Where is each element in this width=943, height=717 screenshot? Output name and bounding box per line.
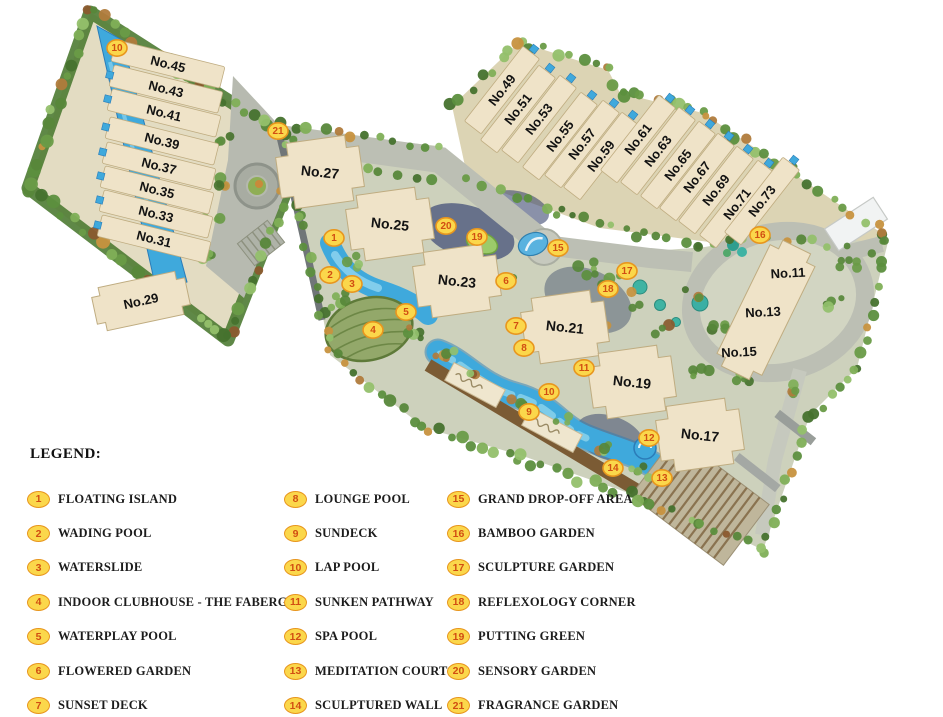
map-marker-1: 1 [324,230,344,246]
legend-item-label: MEDITATION COURT [315,664,448,679]
legend-badge: 13 [284,663,307,680]
legend-badge: 2 [27,525,50,542]
legend-badge: 3 [27,559,50,576]
marker-number: 21 [272,126,284,137]
building-no-29: No.29 [92,271,191,330]
map-marker-6: 6 [496,273,516,289]
legend-item-8: 8LOUNGE POOL [284,482,448,516]
legend-item-label: INDOOR CLUBHOUSE - THE FABERGÈ [58,595,296,610]
map-marker-4: 4 [363,322,383,338]
legend-badge: 17 [447,559,470,576]
legend-item-5: 5WATERPLAY POOL [27,620,296,654]
plunge-pool [96,172,104,180]
legend-item-16: 16BAMBOO GARDEN [447,516,636,550]
roundabout [235,164,279,208]
map-marker-19: 19 [467,229,487,245]
marker-number: 1 [331,233,337,244]
legend-badge: 18 [447,594,470,611]
plunge-pool [101,123,109,131]
legend-item-4: 4INDOOR CLUBHOUSE - THE FABERGÈ [27,585,296,619]
legend-item-label: LOUNGE POOL [315,492,410,507]
legend-item-13: 13MEDITATION COURT [284,654,448,688]
marker-number: 16 [754,230,766,241]
legend-badge: 10 [284,559,307,576]
marker-number: 19 [471,232,483,243]
legend-item-20: 20SENSORY GARDEN [447,654,636,688]
legend-item-label: GRAND DROP-OFF AREA [478,492,633,507]
road-spur [850,244,882,252]
legend-badge: 11 [284,594,307,611]
legend-item-label: SENSORY GARDEN [478,664,596,679]
marker-number: 8 [521,343,527,354]
building-label: No.13 [745,304,781,321]
plunge-pool [93,221,101,229]
legend-title: LEGEND: [30,446,101,463]
legend-item-label: SCULPTURE GARDEN [478,560,614,575]
map-marker-12: 12 [639,430,659,446]
legend-item-label: SUNKEN PATHWAY [315,595,434,610]
map-marker-9: 9 [519,404,539,420]
legend-badge: 8 [284,491,307,508]
legend-item-label: REFLEXOLOGY CORNER [478,595,636,610]
legend-badge: 16 [447,525,470,542]
map-marker-18: 18 [598,281,618,297]
marker-number: 17 [621,266,633,277]
legend-item-12: 12SPA POOL [284,620,448,654]
legend-badge: 20 [447,663,470,680]
map-marker-20: 20 [436,218,456,234]
legend-badge: 12 [284,628,307,645]
marker-number: 18 [602,284,614,295]
map-marker-21: 21 [268,123,288,139]
legend-column-2: 8LOUNGE POOL9SUNDECK10LAP POOL11SUNKEN P… [284,482,448,717]
legend-item-label: WATERSLIDE [58,560,142,575]
map-marker-3: 3 [342,276,362,292]
legend-badge: 19 [447,628,470,645]
legend-badge: 14 [284,697,307,714]
marker-number: 14 [607,463,619,474]
marker-number: 12 [643,433,655,444]
plunge-pool [105,71,113,79]
legend-item-9: 9SUNDECK [284,516,448,550]
building-label: No.11 [770,265,805,282]
legend-item-label: BAMBOO GARDEN [478,526,595,541]
plunge-pool [103,95,111,103]
map-marker-15: 15 [548,240,568,256]
building-no-15: No.15 [721,344,757,361]
legend-item-11: 11SUNKEN PATHWAY [284,585,448,619]
map-marker-10: 10 [539,384,559,400]
legend-item-18: 18REFLEXOLOGY CORNER [447,585,636,619]
map-marker-14: 14 [603,460,623,476]
marker-number: 4 [370,325,376,336]
legend-badge: 5 [27,628,50,645]
legend-badge: 21 [447,697,470,714]
legend-badge: 1 [27,491,50,508]
marker-number: 13 [656,473,668,484]
marker-number: 10 [543,387,555,398]
marker-number: 6 [503,276,509,287]
marker-number: 15 [552,243,564,254]
legend-item-label: FLOATING ISLAND [58,492,177,507]
map-marker-13: 13 [652,470,672,486]
legend-badge: 6 [27,663,50,680]
legend-item-17: 17SCULPTURE GARDEN [447,551,636,585]
legend-badge: 7 [27,697,50,714]
marker-number: 20 [440,221,452,232]
marker-number: 11 [579,363,590,374]
marker-number: 10 [111,43,123,54]
marker-number: 9 [526,407,532,418]
map-marker-2: 2 [320,267,340,283]
legend-column-1: 1FLOATING ISLAND2WADING POOL3WATERSLIDE4… [27,482,296,717]
legend-badge: 4 [27,594,50,611]
legend-badge: 15 [447,491,470,508]
legend-item-label: SCULPTURED WALL [315,698,442,713]
marker-number: 3 [349,279,355,290]
legend-item-10: 10LAP POOL [284,551,448,585]
map-marker-11: 11 [574,360,594,376]
marker-number: 2 [327,270,333,281]
map-marker-16: 16 [750,227,770,243]
marker-number: 7 [513,321,519,332]
legend-item-label: WADING POOL [58,526,152,541]
map-marker-10: 10 [107,40,127,56]
legend-item-label: FLOWERED GARDEN [58,664,191,679]
plunge-pool [95,196,103,204]
legend-column-3: 15GRAND DROP-OFF AREA16BAMBOO GARDEN17SC… [447,482,636,717]
building-no-11: No.11 [770,265,805,282]
map-marker-17: 17 [617,263,637,279]
legend-item-label: SUNDECK [315,526,378,541]
legend-item-label: SPA POOL [315,629,377,644]
legend-item-label: WATERPLAY POOL [58,629,177,644]
legend-item-21: 21FRAGRANCE GARDEN [447,688,636,717]
map-marker-8: 8 [514,340,534,356]
legend-item-14: 14SCULPTURED WALL [284,688,448,717]
legend-item-19: 19PUTTING GREEN [447,620,636,654]
legend-item-label: LAP POOL [315,560,379,575]
legend-item-label: SUNSET DECK [58,698,148,713]
legend-item-label: PUTTING GREEN [478,629,585,644]
map-marker-5: 5 [396,304,416,320]
legend-item-label: FRAGRANCE GARDEN [478,698,618,713]
site-plan-page: No.45No.43No.41No.39No.37No.35No.33No.31… [0,0,943,717]
legend-badge: 9 [284,525,307,542]
legend-item-1: 1FLOATING ISLAND [27,482,296,516]
plunge-pool [98,148,106,156]
legend-item-7: 7SUNSET DECK [27,688,296,717]
marker-number: 5 [403,307,409,318]
legend-item-3: 3WATERSLIDE [27,551,296,585]
map-marker-7: 7 [506,318,526,334]
legend-item-2: 2WADING POOL [27,516,296,550]
legend-item-15: 15GRAND DROP-OFF AREA [447,482,636,516]
legend-item-6: 6FLOWERED GARDEN [27,654,296,688]
building-label: No.15 [721,344,757,361]
building-no-13: No.13 [745,304,781,321]
